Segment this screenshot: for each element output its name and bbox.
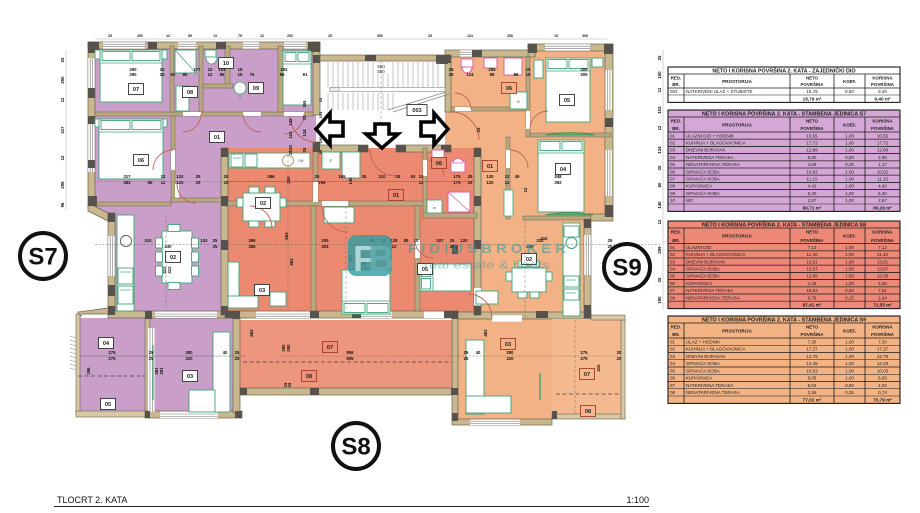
svg-text:7,30: 7,30 bbox=[808, 339, 817, 344]
svg-text:NETO: NETO bbox=[806, 119, 819, 124]
svg-text:01: 01 bbox=[214, 135, 220, 141]
svg-text:2,57: 2,57 bbox=[878, 198, 887, 203]
svg-text:07: 07 bbox=[670, 288, 676, 293]
svg-text:98: 98 bbox=[60, 202, 65, 207]
svg-text:10: 10 bbox=[670, 198, 676, 203]
svg-text:92: 92 bbox=[171, 72, 176, 77]
svg-text:1,00: 1,00 bbox=[845, 267, 854, 272]
svg-text:381: 381 bbox=[159, 367, 164, 375]
svg-text:140: 140 bbox=[657, 201, 662, 209]
svg-text:06: 06 bbox=[436, 161, 442, 167]
svg-text:382: 382 bbox=[123, 180, 131, 185]
svg-text:49: 49 bbox=[515, 174, 520, 179]
svg-text:25: 25 bbox=[60, 57, 65, 62]
svg-text:B: B bbox=[368, 238, 394, 279]
svg-text:15,03: 15,03 bbox=[806, 288, 818, 293]
svg-text:13,67: 13,67 bbox=[877, 267, 889, 272]
svg-text:1,00: 1,00 bbox=[845, 368, 854, 373]
svg-text:KOEF.: KOEF. bbox=[843, 234, 856, 239]
svg-text:12,49: 12,49 bbox=[806, 361, 818, 366]
svg-text:DNEVNI BORAVAK: DNEVNI BORAVAK bbox=[686, 354, 725, 359]
svg-text:20: 20 bbox=[617, 356, 622, 361]
svg-text:120: 120 bbox=[200, 238, 208, 243]
svg-text:1,00: 1,00 bbox=[845, 274, 854, 279]
svg-text:11,40: 11,40 bbox=[877, 252, 888, 257]
svg-text:299: 299 bbox=[657, 246, 662, 254]
svg-text:356: 356 bbox=[267, 174, 275, 179]
svg-text:RED.: RED. bbox=[671, 325, 682, 330]
svg-text:6,30: 6,30 bbox=[808, 191, 817, 196]
svg-text:KUPAONICA: KUPAONICA bbox=[686, 281, 712, 286]
svg-text:12,79: 12,79 bbox=[806, 354, 818, 359]
svg-text:120: 120 bbox=[176, 180, 184, 185]
svg-text:103: 103 bbox=[657, 106, 662, 114]
svg-text:12,49: 12,49 bbox=[877, 361, 889, 366]
svg-text:SPAVAĆA SOBA: SPAVAĆA SOBA bbox=[686, 168, 720, 174]
svg-text:01: 01 bbox=[670, 339, 676, 344]
svg-text:25: 25 bbox=[657, 55, 662, 60]
svg-text:NATKRIVENA TERASA: NATKRIVENA TERASA bbox=[686, 288, 733, 293]
svg-text:NENATKRIVENA TERASA: NENATKRIVENA TERASA bbox=[686, 162, 740, 167]
svg-text:25: 25 bbox=[302, 147, 307, 152]
svg-text:1,00: 1,00 bbox=[845, 347, 854, 352]
svg-text:12,79: 12,79 bbox=[877, 354, 889, 359]
svg-text:799: 799 bbox=[318, 180, 326, 185]
svg-text:1,00: 1,00 bbox=[845, 245, 854, 250]
svg-text:25: 25 bbox=[468, 180, 473, 185]
svg-text:1,00: 1,00 bbox=[845, 148, 854, 153]
svg-text:295: 295 bbox=[507, 34, 513, 38]
svg-text:11,15: 11,15 bbox=[807, 177, 818, 182]
svg-text:1,00: 1,00 bbox=[845, 354, 854, 359]
svg-text:07: 07 bbox=[133, 87, 139, 93]
svg-text:KORISNA: KORISNA bbox=[872, 76, 893, 81]
svg-text:PROSTORIJA: PROSTORIJA bbox=[722, 328, 752, 333]
svg-text:25: 25 bbox=[396, 174, 401, 179]
svg-text:412: 412 bbox=[167, 266, 172, 274]
svg-text:120: 120 bbox=[176, 174, 184, 179]
svg-text:09: 09 bbox=[670, 191, 676, 196]
svg-text:POVRŠINA: POVRŠINA bbox=[801, 332, 825, 337]
svg-text:DNEVNI BORAVAK: DNEVNI BORAVAK bbox=[686, 148, 725, 153]
svg-text:93: 93 bbox=[411, 174, 416, 179]
svg-text:02: 02 bbox=[670, 347, 676, 352]
svg-text:003: 003 bbox=[670, 89, 678, 94]
svg-text:1:100: 1:100 bbox=[626, 495, 649, 505]
svg-text:13,91: 13,91 bbox=[806, 259, 818, 264]
svg-text:13: 13 bbox=[213, 34, 217, 38]
svg-text:06: 06 bbox=[670, 169, 676, 174]
svg-text:PROSTORIJA: PROSTORIJA bbox=[722, 79, 752, 84]
svg-text:KORISNA: KORISNA bbox=[872, 119, 893, 124]
svg-text:12: 12 bbox=[161, 174, 166, 179]
svg-text:252: 252 bbox=[287, 34, 293, 38]
svg-text:290: 290 bbox=[60, 76, 65, 84]
svg-text:5,80: 5,80 bbox=[808, 155, 817, 160]
svg-text:25: 25 bbox=[235, 356, 240, 361]
svg-text:02: 02 bbox=[670, 252, 676, 257]
svg-text:120: 120 bbox=[486, 174, 494, 179]
svg-text:1,00: 1,00 bbox=[845, 259, 854, 264]
svg-text:1,00: 1,00 bbox=[845, 198, 854, 203]
svg-text:1,00: 1,00 bbox=[845, 177, 854, 182]
svg-text:SPAVAĆA SOBA: SPAVAĆA SOBA bbox=[686, 190, 720, 196]
svg-text:25: 25 bbox=[476, 127, 481, 132]
svg-text:03: 03 bbox=[670, 354, 676, 359]
svg-text:POVRŠINA: POVRŠINA bbox=[801, 126, 825, 131]
svg-text:NETO: NETO bbox=[806, 325, 819, 330]
svg-text:DW: DW bbox=[298, 159, 303, 163]
svg-text:11,15: 11,15 bbox=[877, 177, 888, 182]
svg-text:100: 100 bbox=[657, 71, 662, 79]
svg-text:25: 25 bbox=[318, 149, 323, 154]
svg-text:05: 05 bbox=[105, 402, 111, 408]
svg-text:01: 01 bbox=[670, 133, 676, 138]
svg-text:12: 12 bbox=[505, 174, 510, 179]
svg-text:142: 142 bbox=[288, 118, 293, 126]
svg-text:08: 08 bbox=[670, 295, 676, 300]
svg-text:17,72: 17,72 bbox=[806, 141, 818, 146]
svg-text:12,05: 12,05 bbox=[806, 274, 818, 279]
svg-text:6,05: 6,05 bbox=[878, 376, 887, 381]
svg-text:04: 04 bbox=[103, 341, 110, 347]
svg-text:06: 06 bbox=[138, 158, 144, 164]
svg-text:10,55: 10,55 bbox=[806, 133, 818, 138]
svg-text:463: 463 bbox=[483, 329, 488, 337]
svg-text:08: 08 bbox=[585, 409, 591, 415]
svg-text:ULAZ + HODNIK: ULAZ + HODNIK bbox=[686, 339, 720, 344]
svg-text:348: 348 bbox=[554, 174, 562, 179]
svg-text:410: 410 bbox=[540, 236, 548, 241]
svg-text:2,90: 2,90 bbox=[878, 155, 887, 160]
svg-text:02: 02 bbox=[670, 141, 676, 146]
svg-text:290: 290 bbox=[286, 344, 291, 352]
svg-text:POVRŠINA: POVRŠINA bbox=[801, 82, 825, 87]
svg-text:124: 124 bbox=[467, 34, 473, 38]
svg-text:KUPAONICA: KUPAONICA bbox=[686, 376, 712, 381]
svg-text:4,42: 4,42 bbox=[808, 184, 817, 189]
svg-text:275: 275 bbox=[580, 350, 588, 355]
svg-text:F I D I U S B R O K E R: F I D I U S B R O K E R bbox=[408, 242, 566, 256]
svg-text:SPAVAĆA SOBA: SPAVAĆA SOBA bbox=[686, 367, 720, 373]
svg-text:2,57: 2,57 bbox=[808, 198, 817, 203]
svg-text:05: 05 bbox=[670, 274, 676, 279]
svg-text:17,37: 17,37 bbox=[877, 347, 889, 352]
svg-text:15: 15 bbox=[318, 97, 323, 102]
svg-text:KOEF.: KOEF. bbox=[843, 122, 856, 127]
svg-text:663: 663 bbox=[249, 329, 254, 337]
svg-text:25: 25 bbox=[196, 174, 201, 179]
svg-text:11,40: 11,40 bbox=[807, 252, 818, 257]
svg-text:75: 75 bbox=[238, 34, 242, 38]
svg-text:305: 305 bbox=[582, 34, 588, 38]
svg-text:7,12: 7,12 bbox=[878, 245, 887, 250]
svg-text:4,45: 4,45 bbox=[878, 281, 887, 286]
svg-text:01: 01 bbox=[393, 193, 399, 199]
svg-text:75: 75 bbox=[250, 72, 255, 77]
svg-text:SPAVAĆA SOBA: SPAVAĆA SOBA bbox=[686, 266, 720, 272]
svg-text:20: 20 bbox=[617, 350, 622, 355]
svg-text:85: 85 bbox=[280, 72, 285, 77]
svg-text:03: 03 bbox=[670, 148, 676, 153]
svg-text:08: 08 bbox=[187, 90, 193, 96]
svg-text:80,29 m²: 80,29 m² bbox=[873, 206, 892, 211]
svg-text:BR.: BR. bbox=[672, 82, 680, 87]
svg-text:2,95: 2,95 bbox=[808, 390, 817, 395]
svg-text:275: 275 bbox=[108, 356, 116, 361]
svg-text:140: 140 bbox=[348, 177, 353, 185]
svg-text:70,79 m²: 70,79 m² bbox=[873, 398, 892, 403]
svg-text:177: 177 bbox=[193, 67, 201, 72]
svg-text:85: 85 bbox=[220, 72, 225, 77]
svg-text:NATKRIVENI ULAZ + STUBIŠTE: NATKRIVENI ULAZ + STUBIŠTE bbox=[686, 88, 753, 94]
svg-text:7,30: 7,30 bbox=[878, 339, 887, 344]
svg-text:12: 12 bbox=[505, 180, 510, 185]
svg-text:190: 190 bbox=[657, 296, 662, 304]
svg-text:07: 07 bbox=[327, 345, 333, 351]
svg-text:1,00: 1,00 bbox=[845, 361, 854, 366]
svg-text:355: 355 bbox=[302, 100, 307, 108]
svg-text:04: 04 bbox=[670, 361, 676, 366]
svg-text:296: 296 bbox=[60, 181, 65, 189]
svg-text:86: 86 bbox=[514, 72, 519, 77]
svg-text:ULAZNI DIO: ULAZNI DIO bbox=[686, 245, 712, 250]
svg-text:25: 25 bbox=[657, 277, 662, 282]
svg-text:7,51: 7,51 bbox=[878, 288, 887, 293]
svg-text:1,00: 1,00 bbox=[845, 133, 854, 138]
svg-text:12: 12 bbox=[260, 34, 264, 38]
svg-text:25: 25 bbox=[213, 244, 218, 249]
svg-text:290: 290 bbox=[137, 34, 143, 38]
svg-text:4,45: 4,45 bbox=[808, 281, 817, 286]
svg-text:NETO I KORISNA POVRŠINA 2. KAT: NETO I KORISNA POVRŠINA 2. KATA - STAMBE… bbox=[702, 220, 866, 228]
svg-text:06: 06 bbox=[670, 281, 676, 286]
svg-text:12: 12 bbox=[208, 72, 213, 77]
svg-text:07: 07 bbox=[670, 177, 676, 182]
svg-text:PROSTORIJA: PROSTORIJA bbox=[722, 122, 752, 127]
svg-text:BR.: BR. bbox=[672, 332, 680, 337]
svg-text:91: 91 bbox=[303, 72, 308, 77]
svg-text:NENATKRIVENA TERASA: NENATKRIVENA TERASA bbox=[686, 390, 740, 395]
svg-text:25: 25 bbox=[149, 356, 154, 361]
svg-text:12: 12 bbox=[657, 219, 662, 224]
svg-text:1,00: 1,00 bbox=[845, 339, 854, 344]
svg-text:4,69: 4,69 bbox=[808, 162, 817, 167]
svg-text:18,79 m²: 18,79 m² bbox=[803, 97, 822, 102]
svg-text:430: 430 bbox=[164, 244, 172, 249]
svg-text:12: 12 bbox=[523, 187, 528, 192]
svg-text:15: 15 bbox=[554, 34, 558, 38]
svg-text:320: 320 bbox=[185, 356, 193, 361]
svg-text:RED.: RED. bbox=[671, 119, 682, 124]
svg-text:10,62: 10,62 bbox=[806, 169, 818, 174]
svg-text:03: 03 bbox=[259, 288, 265, 294]
svg-text:86,71 m²: 86,71 m² bbox=[803, 206, 822, 211]
svg-text:RED.: RED. bbox=[671, 76, 682, 81]
svg-text:290: 290 bbox=[129, 72, 137, 77]
svg-text:110: 110 bbox=[288, 131, 293, 139]
svg-text:BR.: BR. bbox=[672, 126, 680, 131]
svg-text:134: 134 bbox=[657, 146, 662, 154]
svg-text:18,79: 18,79 bbox=[806, 89, 818, 94]
svg-text:25: 25 bbox=[315, 174, 320, 179]
svg-text:NETO I KORISNA POVRŠINA 2. KAT: NETO I KORISNA POVRŠINA 2. KATA - STAMBE… bbox=[702, 109, 866, 117]
svg-text:12,89: 12,89 bbox=[806, 148, 818, 153]
svg-text:17,72: 17,72 bbox=[877, 141, 889, 146]
svg-text:w: w bbox=[433, 205, 436, 210]
svg-text:PROSTORIJA: PROSTORIJA bbox=[722, 234, 752, 239]
svg-text:12: 12 bbox=[419, 174, 424, 179]
svg-text:1,00: 1,00 bbox=[845, 141, 854, 146]
svg-text:9,40 m²: 9,40 m² bbox=[874, 97, 891, 102]
svg-text:9,78: 9,78 bbox=[808, 295, 817, 300]
svg-text:200: 200 bbox=[286, 176, 291, 184]
svg-text:85: 85 bbox=[188, 34, 192, 38]
svg-text:S8: S8 bbox=[341, 434, 370, 461]
svg-text:S7: S7 bbox=[28, 244, 57, 271]
svg-text:175: 175 bbox=[453, 174, 461, 179]
svg-text:15: 15 bbox=[302, 115, 307, 120]
svg-text:550: 550 bbox=[377, 34, 383, 38]
svg-text:09: 09 bbox=[253, 86, 259, 92]
svg-text:25: 25 bbox=[464, 356, 469, 361]
svg-text:SPAVAĆA SOBA: SPAVAĆA SOBA bbox=[686, 273, 720, 279]
svg-text:04: 04 bbox=[670, 155, 676, 160]
svg-text:NETO: NETO bbox=[806, 76, 819, 81]
svg-text:1,00: 1,00 bbox=[845, 184, 854, 189]
svg-text:25: 25 bbox=[657, 165, 662, 170]
svg-text:04: 04 bbox=[670, 267, 676, 272]
svg-text:25: 25 bbox=[362, 174, 367, 179]
svg-text:2610: 2610 bbox=[288, 145, 293, 155]
svg-text:05: 05 bbox=[564, 98, 570, 104]
svg-text:25: 25 bbox=[464, 350, 469, 355]
svg-text:06: 06 bbox=[506, 86, 512, 92]
svg-text:25: 25 bbox=[235, 350, 240, 355]
svg-text:0,25: 0,25 bbox=[845, 162, 854, 167]
svg-text:KUPAONICA: KUPAONICA bbox=[686, 184, 712, 189]
svg-text:134: 134 bbox=[302, 129, 307, 137]
svg-text:SPAVAĆA SOBA: SPAVAĆA SOBA bbox=[686, 360, 720, 366]
svg-text:296: 296 bbox=[86, 367, 91, 375]
svg-text:392: 392 bbox=[554, 180, 562, 185]
svg-text:124: 124 bbox=[466, 72, 474, 77]
svg-text:15: 15 bbox=[160, 72, 165, 77]
svg-text:25: 25 bbox=[449, 72, 454, 77]
svg-text:05: 05 bbox=[670, 162, 676, 167]
svg-text:KUHINJA + BLAGOVAONICA: KUHINJA + BLAGOVAONICA bbox=[686, 252, 746, 257]
svg-text:85: 85 bbox=[183, 72, 188, 77]
svg-text:12: 12 bbox=[60, 155, 65, 160]
svg-text:0,25: 0,25 bbox=[845, 295, 854, 300]
svg-text:1,17: 1,17 bbox=[878, 162, 887, 167]
svg-text:KORISNA: KORISNA bbox=[872, 325, 893, 330]
svg-text:12: 12 bbox=[419, 180, 424, 185]
svg-text:S9: S9 bbox=[612, 255, 641, 282]
svg-text:real estate & boats: real estate & boats bbox=[424, 260, 551, 272]
svg-text:POVRŠINA: POVRŠINA bbox=[871, 332, 895, 337]
svg-text:6,30: 6,30 bbox=[878, 191, 887, 196]
svg-text:KUHINJA + BLAGOVAONICA: KUHINJA + BLAGOVAONICA bbox=[686, 347, 746, 352]
svg-text:205: 205 bbox=[321, 238, 329, 243]
svg-text:NETO I KORISNA POVRŠINA 2. KAT: NETO I KORISNA POVRŠINA 2. KATA - ZAJEDN… bbox=[712, 66, 855, 74]
svg-text:KUHINJA + BLAGOVAONICA: KUHINJA + BLAGOVAONICA bbox=[686, 141, 746, 146]
svg-text:06: 06 bbox=[670, 376, 676, 381]
svg-text:POVRŠINA: POVRŠINA bbox=[871, 126, 895, 131]
svg-text:1,00: 1,00 bbox=[845, 191, 854, 196]
svg-text:KORISNA: KORISNA bbox=[872, 230, 893, 235]
svg-text:165: 165 bbox=[338, 174, 346, 179]
svg-text:NATKRIVENA TERASA: NATKRIVENA TERASA bbox=[686, 383, 733, 388]
svg-text:1,00: 1,00 bbox=[845, 169, 854, 174]
svg-text:1,00: 1,00 bbox=[845, 281, 854, 286]
svg-text:310: 310 bbox=[144, 238, 152, 243]
svg-text:25: 25 bbox=[608, 238, 613, 243]
svg-text:60: 60 bbox=[657, 182, 662, 187]
svg-text:4,42: 4,42 bbox=[878, 184, 887, 189]
svg-text:NATKRIVENA TERASA: NATKRIVENA TERASA bbox=[686, 155, 733, 160]
svg-text:12: 12 bbox=[166, 34, 170, 38]
svg-text:WC: WC bbox=[686, 198, 694, 203]
svg-text:02: 02 bbox=[260, 201, 266, 207]
svg-text:NETO I KORISNA POVRŠINA 2. KAT: NETO I KORISNA POVRŠINA 2. KATA - STAMBE… bbox=[702, 315, 866, 323]
svg-text:01: 01 bbox=[487, 164, 493, 170]
svg-text:08: 08 bbox=[670, 184, 676, 189]
svg-text:12: 12 bbox=[161, 180, 166, 185]
svg-text:25: 25 bbox=[428, 34, 432, 38]
svg-text:110: 110 bbox=[379, 174, 387, 179]
svg-text:85: 85 bbox=[490, 72, 495, 77]
svg-text:25: 25 bbox=[328, 34, 332, 38]
svg-text:906: 906 bbox=[346, 350, 354, 355]
svg-text:NENATKRIVENA TERASA: NENATKRIVENA TERASA bbox=[686, 295, 740, 300]
svg-text:12,05: 12,05 bbox=[877, 274, 889, 279]
svg-text:03: 03 bbox=[187, 374, 193, 380]
svg-text:10,55: 10,55 bbox=[877, 133, 889, 138]
svg-text:7,12: 7,12 bbox=[808, 245, 817, 250]
svg-text:13,91: 13,91 bbox=[877, 259, 889, 264]
svg-text:KOEF.: KOEF. bbox=[843, 79, 856, 84]
svg-text:0,74: 0,74 bbox=[878, 390, 887, 395]
svg-text:103: 103 bbox=[318, 111, 323, 118]
svg-text:12: 12 bbox=[657, 125, 662, 130]
svg-text:415: 415 bbox=[596, 364, 601, 372]
svg-text:663: 663 bbox=[284, 232, 289, 240]
svg-text:906: 906 bbox=[346, 356, 354, 361]
svg-text:KOEF.: KOEF. bbox=[843, 328, 856, 333]
svg-text:275: 275 bbox=[108, 350, 116, 355]
svg-text:175: 175 bbox=[453, 180, 461, 185]
svg-text:4,02: 4,02 bbox=[878, 383, 887, 388]
svg-text:0,50: 0,50 bbox=[845, 288, 854, 293]
svg-text:0,50: 0,50 bbox=[845, 89, 854, 94]
svg-text:003: 003 bbox=[412, 108, 421, 114]
svg-text:87,41 m²: 87,41 m² bbox=[803, 303, 822, 308]
svg-text:04: 04 bbox=[560, 167, 567, 173]
svg-text:12: 12 bbox=[60, 97, 65, 102]
svg-text:0,50: 0,50 bbox=[845, 383, 854, 388]
svg-text:TLOCRT 2. KATA: TLOCRT 2. KATA bbox=[57, 495, 127, 505]
svg-text:25: 25 bbox=[108, 34, 112, 38]
svg-text:02: 02 bbox=[170, 255, 176, 261]
svg-text:07: 07 bbox=[670, 383, 676, 388]
svg-text:03: 03 bbox=[505, 342, 511, 348]
svg-text:07: 07 bbox=[584, 372, 590, 378]
svg-text:POVRŠINA: POVRŠINA bbox=[871, 238, 895, 243]
svg-text:15: 15 bbox=[238, 72, 243, 77]
svg-text:320: 320 bbox=[506, 356, 514, 361]
svg-text:17,37: 17,37 bbox=[806, 347, 818, 352]
